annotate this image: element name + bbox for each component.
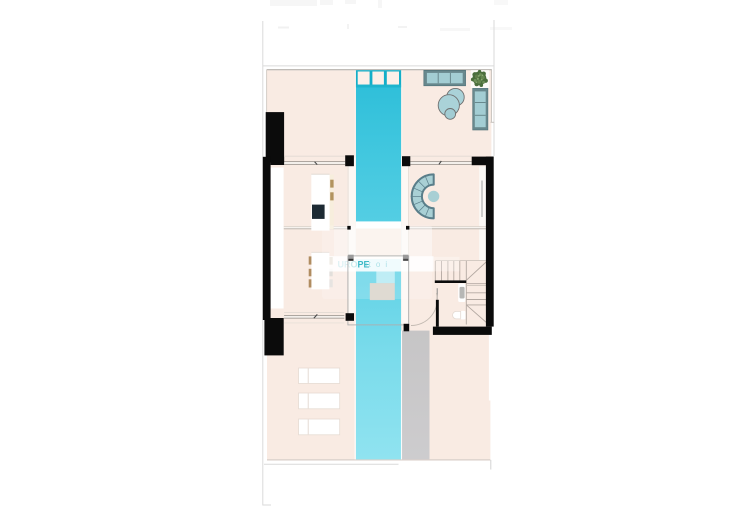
svg-text:it o i: it o i (366, 260, 389, 269)
